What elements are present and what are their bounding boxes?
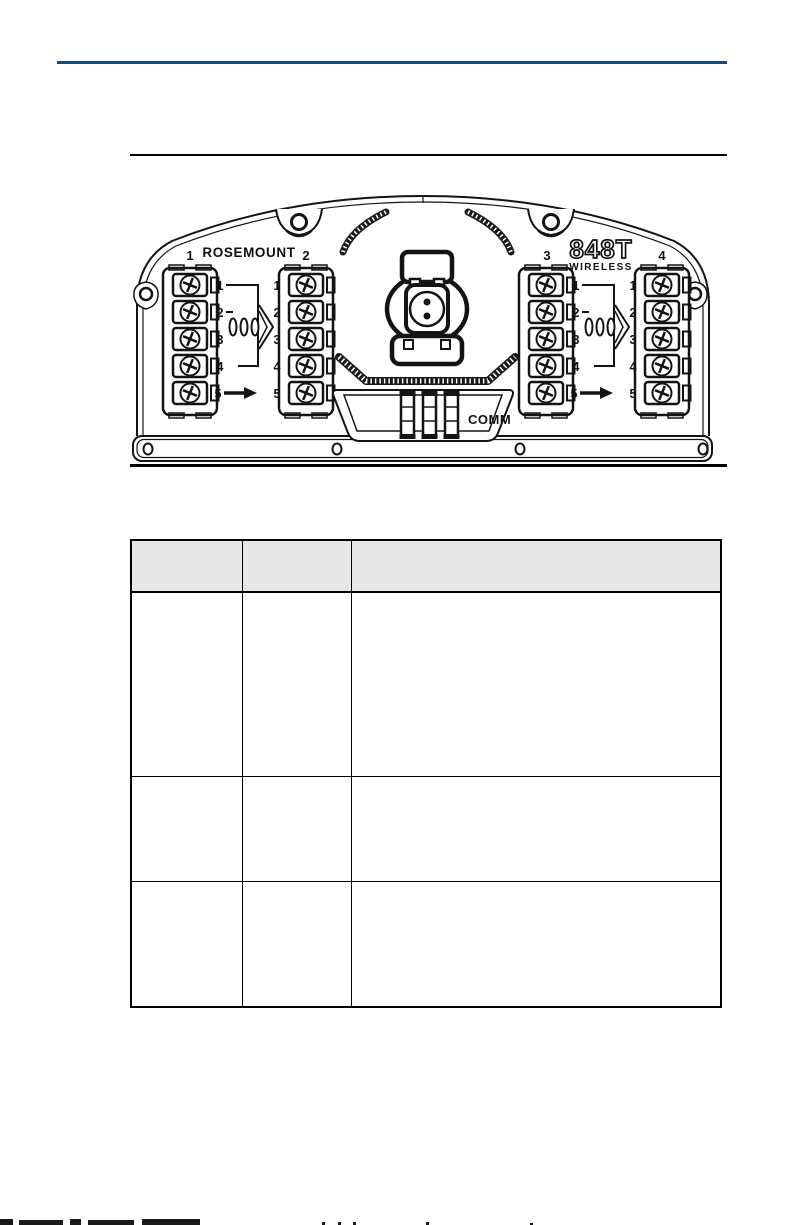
svg-text:1: 1 [274, 279, 281, 293]
table-cell [351, 881, 721, 1007]
svg-text:4: 4 [274, 360, 281, 374]
svg-text:2: 2 [274, 306, 281, 320]
block-label-2: 2 [302, 248, 309, 263]
top-mounting-tab-left [276, 209, 322, 237]
svg-text:2: 2 [573, 306, 580, 320]
svg-text:4: 4 [217, 360, 224, 374]
terminal-strip-2 [279, 265, 335, 418]
table-cell [351, 776, 721, 881]
mounting-hole [516, 444, 525, 455]
svg-text:5: 5 [571, 387, 578, 401]
block-label-4: 4 [658, 248, 666, 263]
device-drawing: 1 2 3 4 5 1 2 3 4 5 1 2 3 4 5 1 2 3 4 5 … [130, 190, 714, 466]
table-header-row [131, 540, 721, 592]
terminal-connections-table [130, 539, 722, 1008]
header-accent-rule [57, 61, 727, 64]
wiring-schematic-right [580, 285, 629, 399]
top-mounting-tab-right [528, 209, 574, 237]
terminal-strip-3 [519, 265, 575, 418]
table-cell [242, 776, 351, 881]
svg-text:3: 3 [573, 333, 580, 347]
svg-text:4: 4 [573, 360, 580, 374]
mounting-hole [333, 444, 342, 455]
document-page: 1 2 3 4 5 1 2 3 4 5 1 2 3 4 5 1 2 3 4 5 … [0, 0, 793, 1225]
svg-text:3: 3 [274, 333, 281, 347]
svg-text:2: 2 [217, 306, 224, 320]
table-header-cell-2 [242, 540, 351, 592]
table-header-cell-1 [131, 540, 242, 592]
svg-text:2: 2 [630, 306, 637, 320]
svg-text:5: 5 [215, 387, 222, 401]
comm-label: COMM [468, 412, 511, 427]
model-848t-text: 848T [569, 234, 632, 264]
svg-text:1: 1 [217, 279, 224, 293]
svg-text:5: 5 [274, 387, 281, 401]
mounting-hole [699, 444, 708, 455]
table-cell [242, 592, 351, 776]
svg-text:5: 5 [630, 387, 637, 401]
table-row [131, 881, 721, 1007]
svg-text:3: 3 [630, 333, 637, 347]
table-row [131, 592, 721, 776]
table-cell [131, 592, 242, 776]
antenna-connector [387, 252, 467, 364]
model-wireless-text: WIRELESS [569, 262, 632, 273]
table-cell [131, 776, 242, 881]
terminal-strip-1 [163, 265, 219, 418]
wiring-schematic-left [224, 285, 273, 399]
table-row [131, 776, 721, 881]
terminal-block-figure: 1 2 3 4 5 1 2 3 4 5 1 2 3 4 5 1 2 3 4 5 … [130, 190, 714, 466]
table-cell [242, 881, 351, 1007]
table-cell [131, 881, 242, 1007]
rosemount-logo-text: ROSEMOUNT [202, 245, 295, 260]
table-header-cell-3 [351, 540, 721, 592]
side-hole-left [134, 282, 158, 309]
table-cell [351, 592, 721, 776]
figure-top-rule [130, 154, 727, 156]
block-label-3: 3 [543, 248, 550, 263]
block-label-1: 1 [186, 248, 193, 263]
mounting-hole [144, 444, 153, 455]
comm-module: COMM [333, 390, 513, 441]
svg-text:1: 1 [630, 279, 637, 293]
terminal-strip-4 [635, 265, 691, 418]
svg-text:4: 4 [630, 360, 637, 374]
svg-text:1: 1 [573, 279, 580, 293]
svg-text:3: 3 [217, 333, 224, 347]
